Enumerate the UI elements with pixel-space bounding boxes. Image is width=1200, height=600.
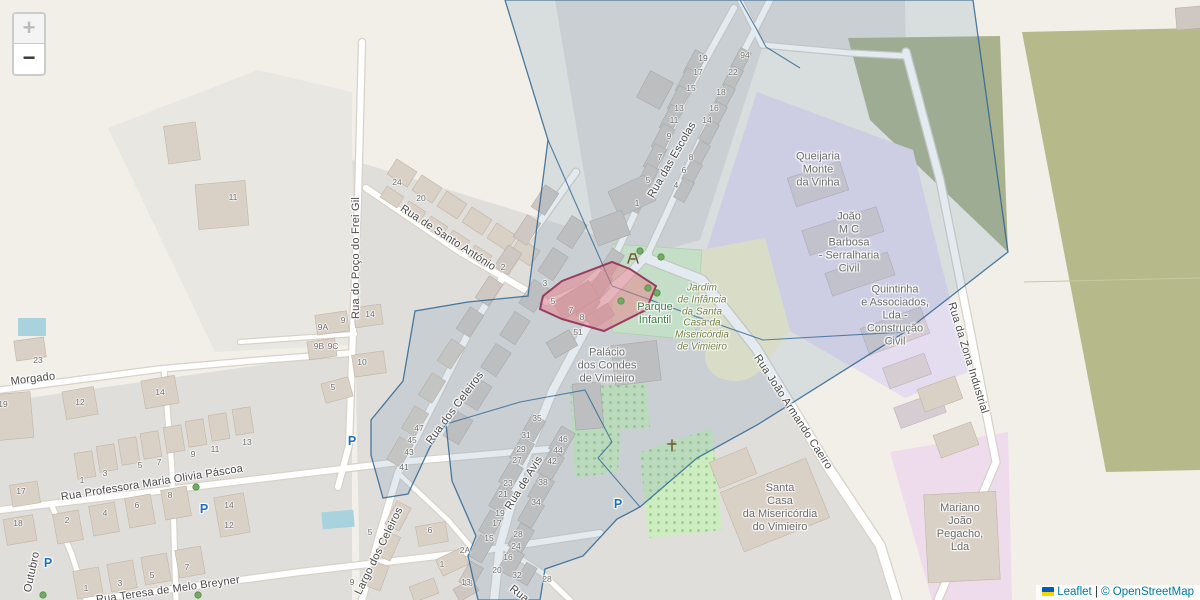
building [118,437,140,465]
attribution-separator: | [1092,586,1101,598]
zoom-out-button[interactable]: − [14,44,44,74]
building [0,392,34,441]
zoom-in-button[interactable]: + [14,14,44,44]
building [73,567,103,599]
ukraine-flag-icon [1042,587,1054,596]
map-canvas [0,0,1200,600]
building [353,304,384,328]
building [3,515,37,546]
building [352,351,387,377]
building [175,546,205,578]
tree-icon [654,290,660,296]
tree-icon [40,592,46,598]
tree-icon [645,285,651,291]
building [214,493,250,538]
building [307,338,337,360]
tree-icon [193,484,199,490]
tree-icon [195,592,201,598]
building [208,413,230,441]
building [74,451,96,479]
building [163,425,185,453]
field-area [1022,28,1200,472]
building [14,337,46,361]
attribution: Leaflet | © OpenStreetMap [1036,585,1200,600]
tree-icon [658,254,664,260]
tree-icon [637,248,643,254]
building [141,553,171,585]
building [924,491,1001,583]
building [53,510,84,544]
building [62,386,98,419]
building [141,375,179,408]
zoom-control: + − [12,12,46,76]
tree-icon [618,298,624,304]
water-area [18,318,46,336]
building [315,311,349,335]
building [1175,6,1200,30]
building [164,122,201,164]
building [9,481,40,507]
building [195,180,249,229]
map-viewport[interactable]: Rua do Poço do Frei GilRua de Santo Antó… [0,0,1200,600]
building [140,431,162,459]
building [125,494,156,528]
building [232,407,254,435]
building [89,502,120,536]
building [96,444,118,472]
building [161,486,192,520]
building [185,419,207,447]
building [107,560,137,592]
osm-link[interactable]: © OpenStreetMap [1101,586,1194,598]
leaflet-link[interactable]: Leaflet [1057,586,1092,598]
water-area [321,510,354,530]
